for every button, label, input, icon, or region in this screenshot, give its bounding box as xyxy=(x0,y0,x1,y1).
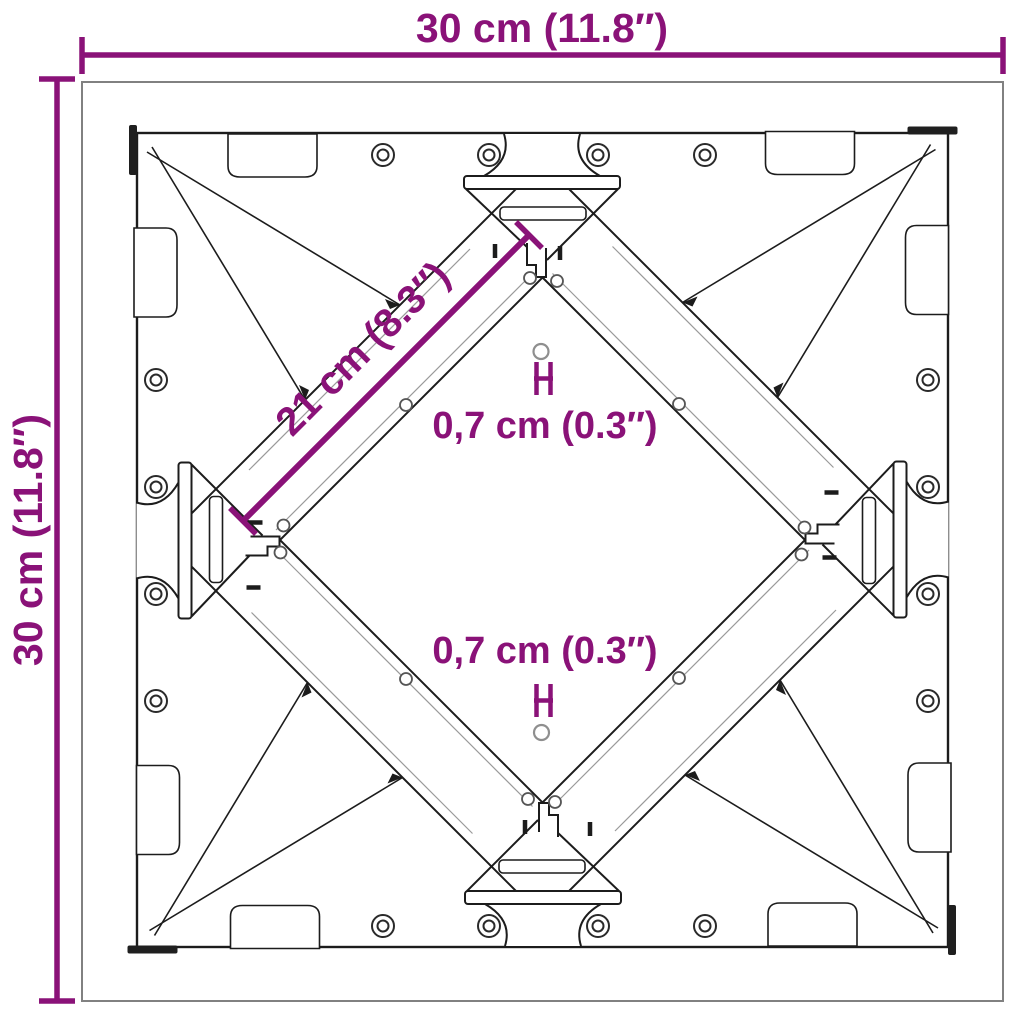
height-dimension: 30 cm (11.8″) xyxy=(5,79,75,1001)
height-label: 30 cm (11.8″) xyxy=(5,414,51,666)
frame-drawing xyxy=(82,82,1003,1001)
width-label: 30 cm (11.8″) xyxy=(416,5,668,51)
hole-lower-label: 0,7 cm (0.3″) xyxy=(432,630,657,672)
dimension-diagram: 30 cm (11.8″) 30 cm (11.8″) 21 cm (8.3″)… xyxy=(0,0,1024,1024)
diagram-canvas: 30 cm (11.8″) 30 cm (11.8″) 21 cm (8.3″)… xyxy=(0,0,1024,1024)
width-dimension: 30 cm (11.8″) xyxy=(82,5,1003,74)
hole-upper-label: 0,7 cm (0.3″) xyxy=(432,405,657,447)
